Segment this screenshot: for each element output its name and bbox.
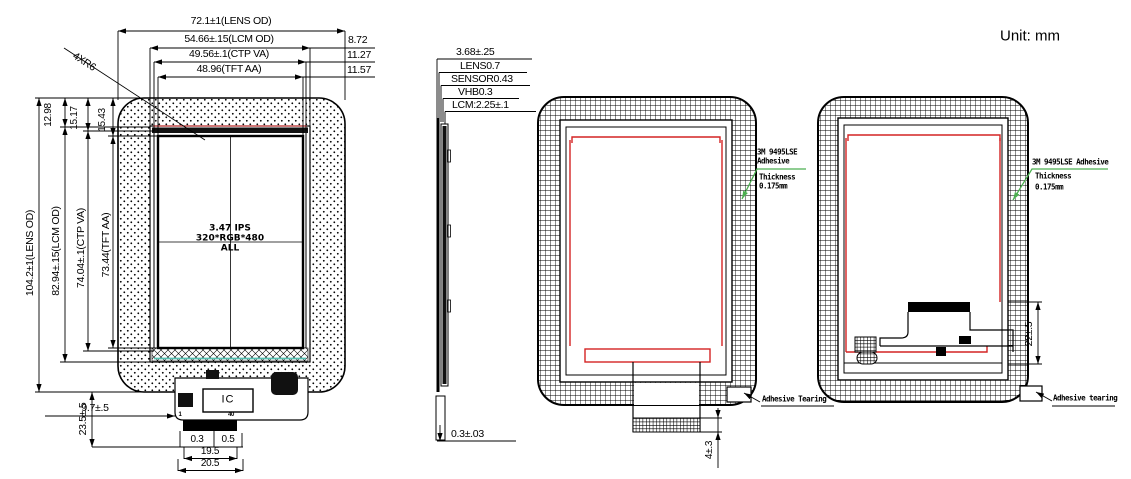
dim-tail-length: 4±.3 [705, 441, 715, 459]
adhesive-label-line4: 0.175mm [759, 182, 787, 190]
dim-lens-od-width: 72.1±1(LENS OD) [191, 16, 272, 27]
dim-pin-pitch: 0.5 [221, 435, 234, 445]
rear-view-right-linework [818, 97, 1115, 406]
pin-last-label: 40 [228, 412, 234, 418]
dim-top-margin-tft: 15.43 [98, 108, 108, 132]
adhesive-label-line3: Thickness [759, 173, 795, 181]
dim-margin-ctp: 11.27 [347, 50, 371, 61]
dim-connector-width: 19.5 [201, 447, 219, 457]
dim-ctp-va-width: 49.56±.1(CTP VA) [189, 49, 269, 60]
dim-fpc-height: 22±.5 [1024, 322, 1035, 347]
stack-sensor-thickness: SENSOR0.43 [451, 74, 513, 85]
stack-lcm-thickness: LCM:2.25±.1 [452, 100, 509, 111]
display-spec-viewing: ALL [221, 245, 239, 254]
dim-top-margin-lcm: 12.98 [44, 103, 54, 127]
side-view-linework [436, 59, 536, 441]
dim-tft-aa-height: 73.44(TFT AA) [101, 213, 112, 278]
drawing-linework [0, 0, 1131, 479]
dim-margin-tft: 11.57 [347, 65, 371, 76]
dim-pin-width: 0.3 [190, 435, 203, 445]
dim-lcm-od-width: 54.66±.15(LCM OD) [184, 34, 273, 45]
adhesive-label-right-line3: 0.175mm [1035, 183, 1063, 191]
display-spec-size: 3.47 IPS [209, 225, 251, 234]
dim-lens-od-height: 104.2±1(LENS OD) [25, 210, 36, 296]
dim-fpc-drop: 23.5±.5 [78, 403, 89, 436]
display-spec-resolution: 320*RGB*480 [196, 235, 264, 244]
adhesive-label-line1: 3M 9495LSE [757, 148, 797, 156]
ic-label: IC [222, 395, 235, 406]
dim-top-margin-ctp: 15.17 [70, 106, 80, 130]
pin-first-label: 1 [178, 412, 181, 418]
dim-tail-thickness: 0.3±.03 [451, 429, 484, 440]
adhesive-label-line2: Adhesive [757, 157, 789, 165]
dim-tft-aa-width: 48.96(TFT AA) [197, 64, 262, 75]
adhesive-label-right-line2: Thickness [1035, 172, 1071, 180]
dim-margin-lcm: 8.72 [348, 35, 367, 46]
dim-tail-width: 20.5 [201, 459, 219, 469]
dim-lcm-od-height: 82.94±.15(LCM OD) [51, 206, 62, 295]
unit-label: Unit: mm [1000, 29, 1060, 44]
stack-vhb-thickness: VHB0.3 [458, 87, 492, 98]
adhesive-tearing-label-center: Adhesive Tearing [762, 395, 826, 403]
adhesive-label-right-line1: 3M 9495LSE Adhesive [1032, 158, 1108, 166]
adhesive-tearing-label-right: Adhesive tearing [1053, 394, 1117, 402]
stack-total-thickness: 3.68±.25 [456, 47, 494, 58]
stack-lens-thickness: LENS0.7 [460, 61, 500, 72]
dim-ctp-va-height: 74.04±.1(CTP VA) [76, 208, 87, 288]
engineering-drawing-canvas: 72.1±1(LENS OD) 54.66±.15(LCM OD) 49.56±… [0, 0, 1131, 479]
